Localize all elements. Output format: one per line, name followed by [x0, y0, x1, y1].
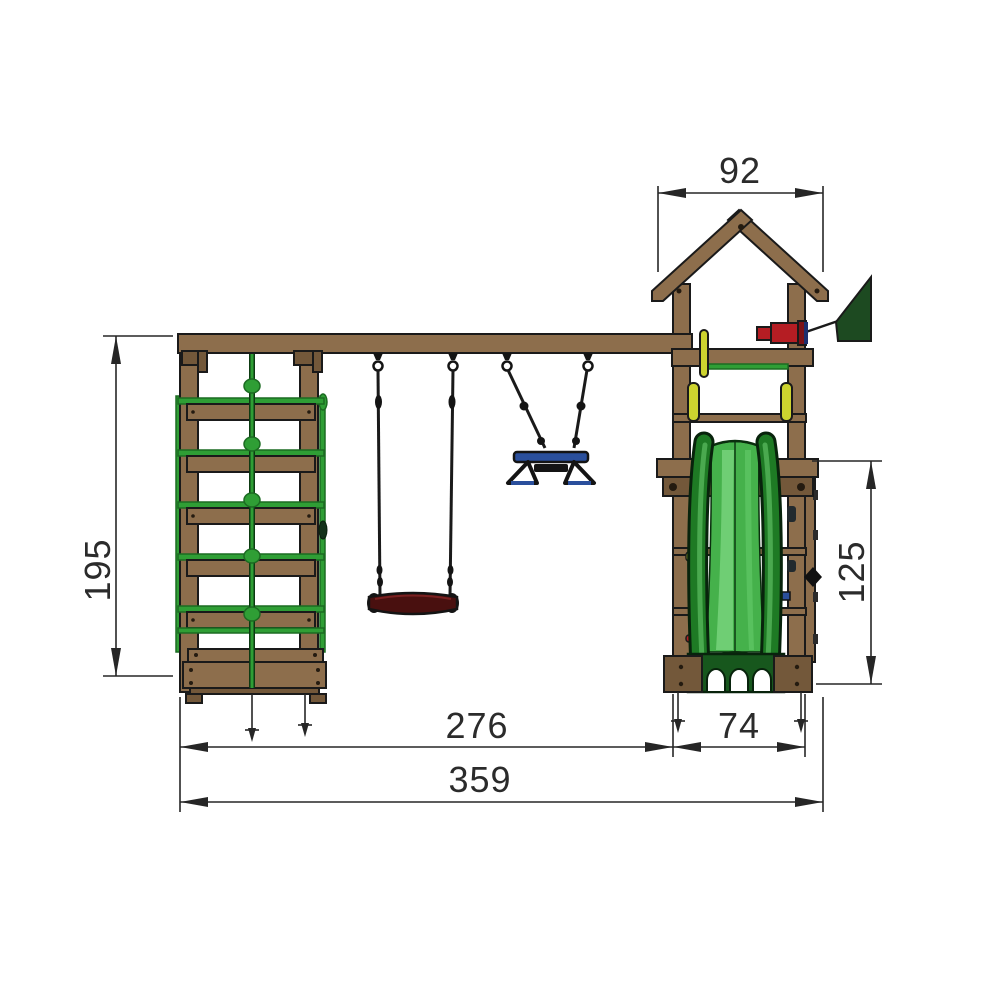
dim-label-platform-height: 125: [831, 540, 872, 603]
playground-dimension-drawing: 92 195 125 276 74 359: [0, 0, 1000, 1000]
handle-icon: [781, 383, 792, 421]
frame-side-knob-dark: [319, 521, 327, 539]
handle-icon: [688, 383, 699, 421]
trapeze-bar: [514, 452, 588, 462]
roof: [652, 210, 828, 301]
handle-icon: [700, 330, 708, 377]
swing-beam: [178, 334, 692, 353]
dim-label-roof-width: 92: [719, 150, 761, 191]
dimension-frame-height: 195: [77, 336, 173, 676]
climbing-hold: [782, 592, 790, 600]
dim-label-frame-height: 195: [77, 538, 118, 601]
flag-icon: [836, 277, 871, 341]
roof-rafter-left: [652, 210, 752, 301]
dimension-bottom-widths: 276 74 359: [180, 694, 823, 812]
slide: [688, 441, 784, 692]
climbing-frame: [176, 334, 327, 703]
platform-floor-edge: [700, 364, 788, 369]
gym-ring-right: [565, 462, 594, 483]
dimension-platform-height: 125: [812, 461, 882, 684]
gym-ring-left: [508, 462, 537, 483]
swing: [367, 353, 459, 614]
climbing-hold: [787, 506, 796, 522]
telescope: [757, 321, 808, 345]
trapeze-rings: [502, 353, 594, 483]
diagram-canvas: 92 195 125 276 74 359: [0, 0, 1000, 1000]
climbing-hold: [787, 560, 796, 572]
dim-label-swing-section-width: 276: [445, 705, 508, 746]
dim-label-tower-width: 74: [718, 705, 760, 746]
dim-label-total-width: 359: [448, 759, 511, 800]
